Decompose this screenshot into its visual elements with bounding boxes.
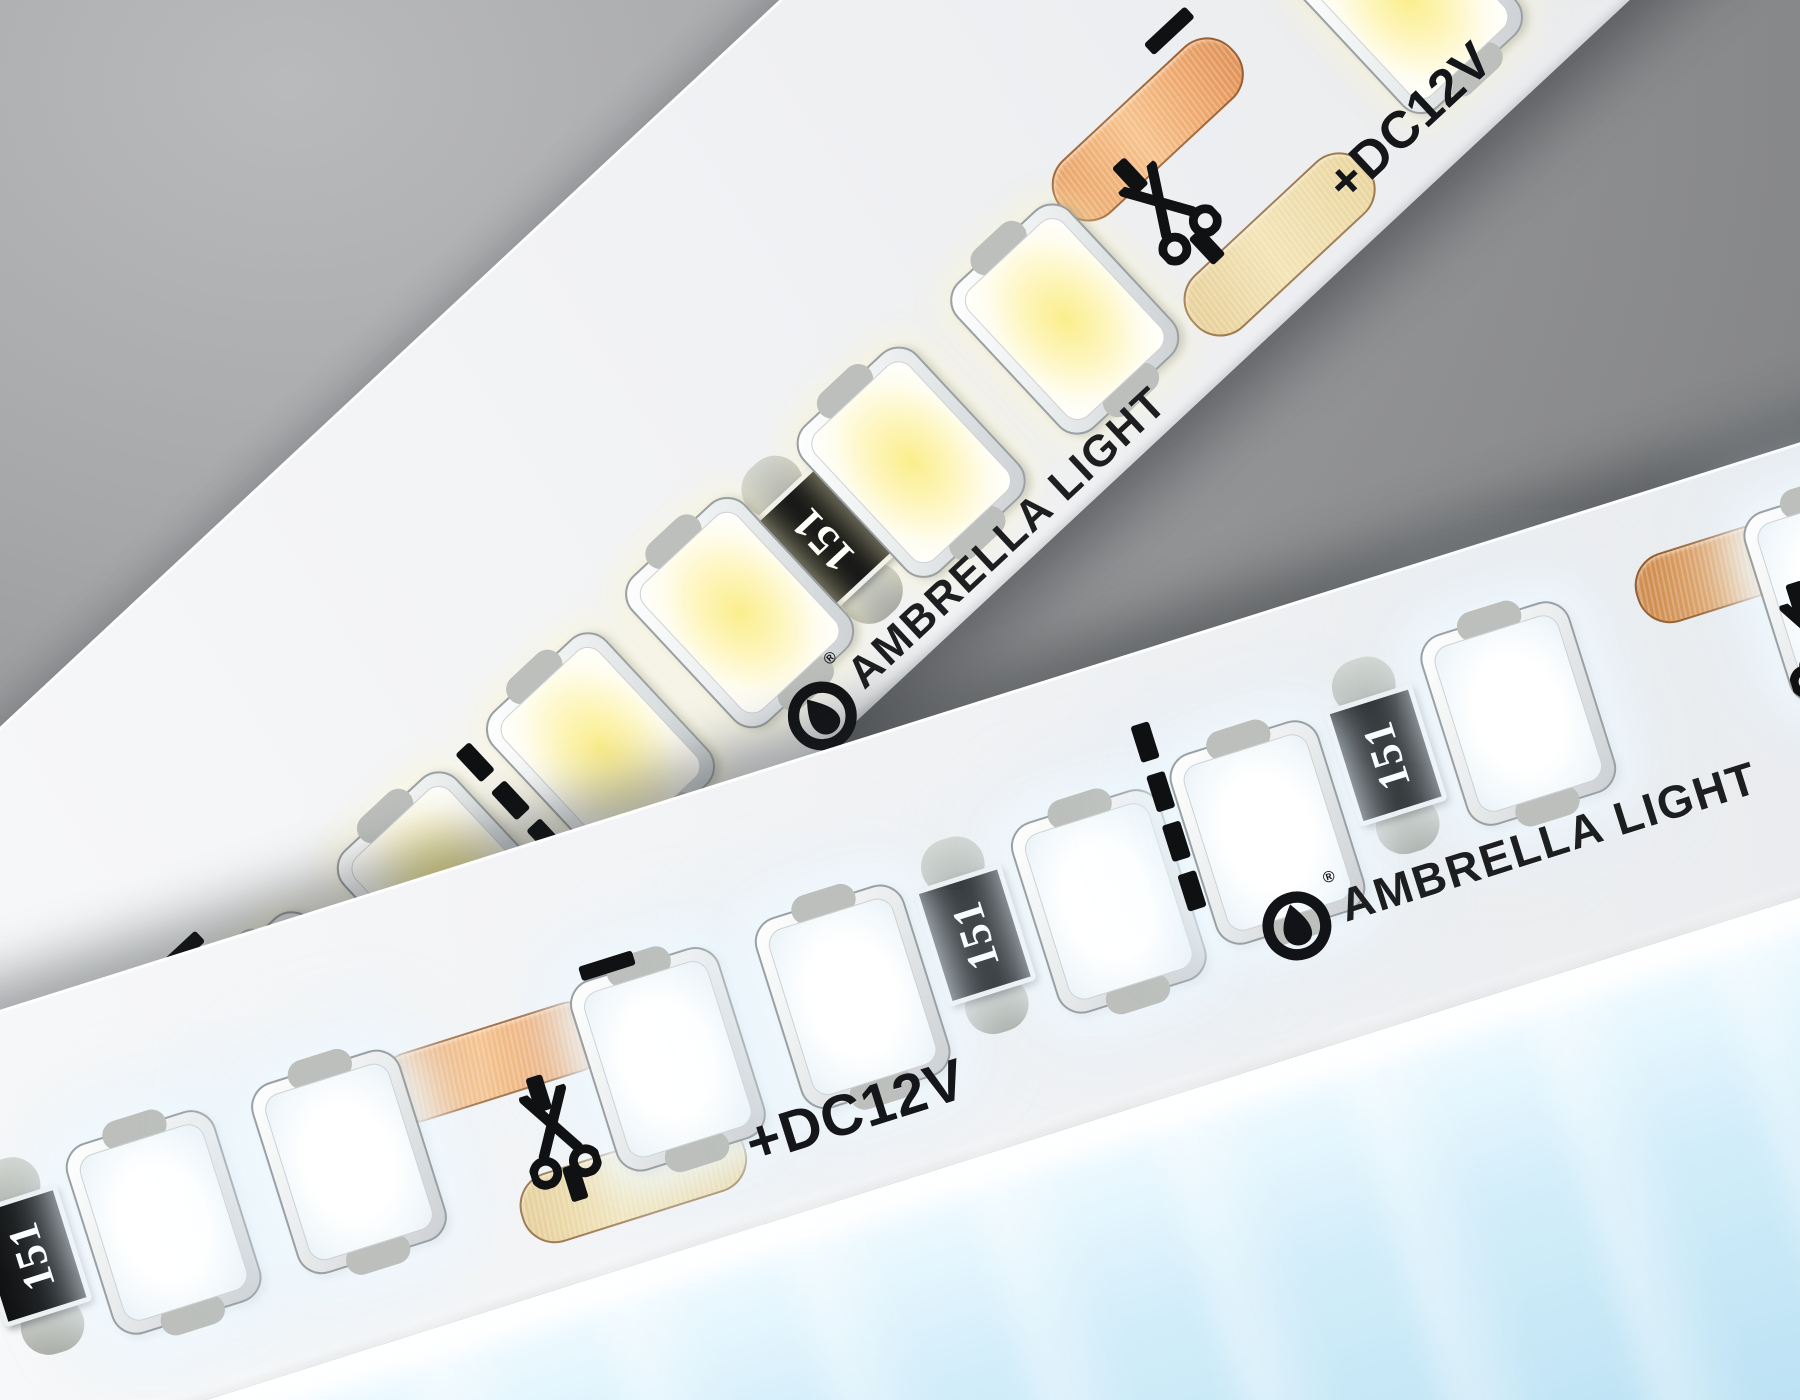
resistor-code: 151 bbox=[0, 1215, 65, 1296]
led-strip-product-photo: 151®AMBRELLA LIGHT151+DC12V 151+DC12V151… bbox=[0, 0, 1800, 1400]
resistor-code: 151 bbox=[1351, 715, 1420, 796]
resistor-code: 151 bbox=[940, 895, 1009, 976]
